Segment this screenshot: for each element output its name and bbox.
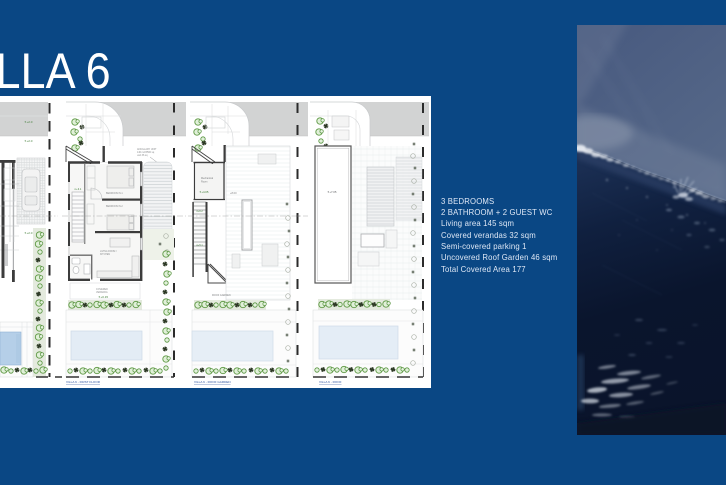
- svg-text:✦+3.1: ✦+3.1: [74, 187, 82, 191]
- svg-text:✦+2.0: ✦+2.0: [24, 139, 33, 143]
- svg-text:✦+7.05: ✦+7.05: [327, 190, 337, 194]
- svg-text:VERANDA: VERANDA: [96, 291, 108, 294]
- svg-text:BEDROOM N.1: BEDROOM N.1: [106, 192, 123, 195]
- svg-text:✦+4.05: ✦+4.05: [199, 190, 209, 194]
- svg-text:ROOF GARDEN: ROOF GARDEN: [212, 294, 231, 297]
- svg-text:✦+2.0: ✦+2.0: [24, 231, 33, 235]
- svg-text:✦+0.15: ✦+0.15: [98, 295, 108, 299]
- svg-text:✦+6.2: ✦+6.2: [196, 210, 203, 213]
- svg-text:und 36 sq: und 36 sq: [137, 154, 148, 157]
- svg-text:✦+2.0: ✦+2.0: [24, 120, 33, 124]
- svg-text:BEDROOM N.2: BEDROOM N.2: [106, 205, 123, 208]
- svg-text:+8.00: +8.00: [230, 191, 237, 195]
- svg-text:KITCHEN: KITCHEN: [100, 254, 110, 256]
- svg-text:VILLA 6 - ROOF: VILLA 6 - ROOF: [319, 380, 342, 384]
- svg-text:Room: Room: [201, 181, 207, 184]
- svg-text:LIVING ROOM /: LIVING ROOM /: [100, 251, 117, 253]
- svg-text:✦+5.1: ✦+5.1: [196, 244, 203, 247]
- svg-text:VILLA 6 - ROOF GARDEN: VILLA 6 - ROOF GARDEN: [194, 380, 231, 384]
- svg-text:VILLA 6 - FIRST FLOOR: VILLA 6 - FIRST FLOOR: [66, 380, 101, 384]
